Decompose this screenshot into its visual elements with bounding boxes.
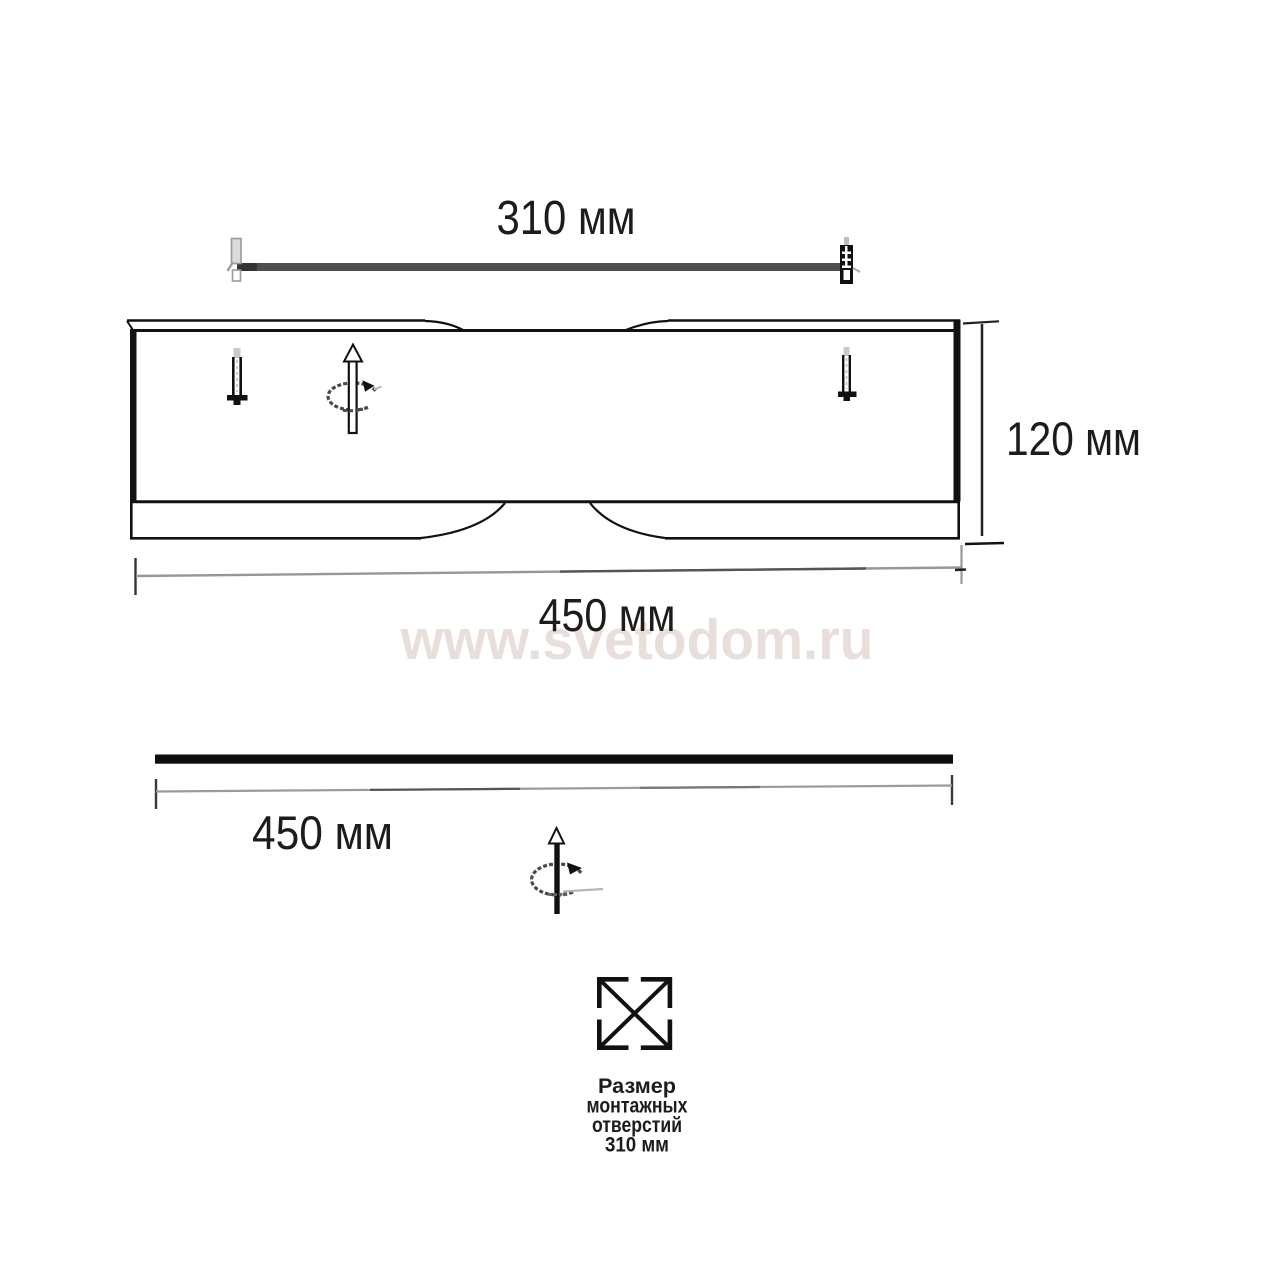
svg-text:310 мм: 310 мм	[497, 192, 636, 245]
svg-text:120 мм: 120 мм	[1006, 412, 1141, 465]
svg-text:450 мм: 450 мм	[252, 806, 393, 859]
svg-text:450 мм: 450 мм	[539, 589, 676, 641]
svg-text:310 мм: 310 мм	[605, 1134, 669, 1157]
